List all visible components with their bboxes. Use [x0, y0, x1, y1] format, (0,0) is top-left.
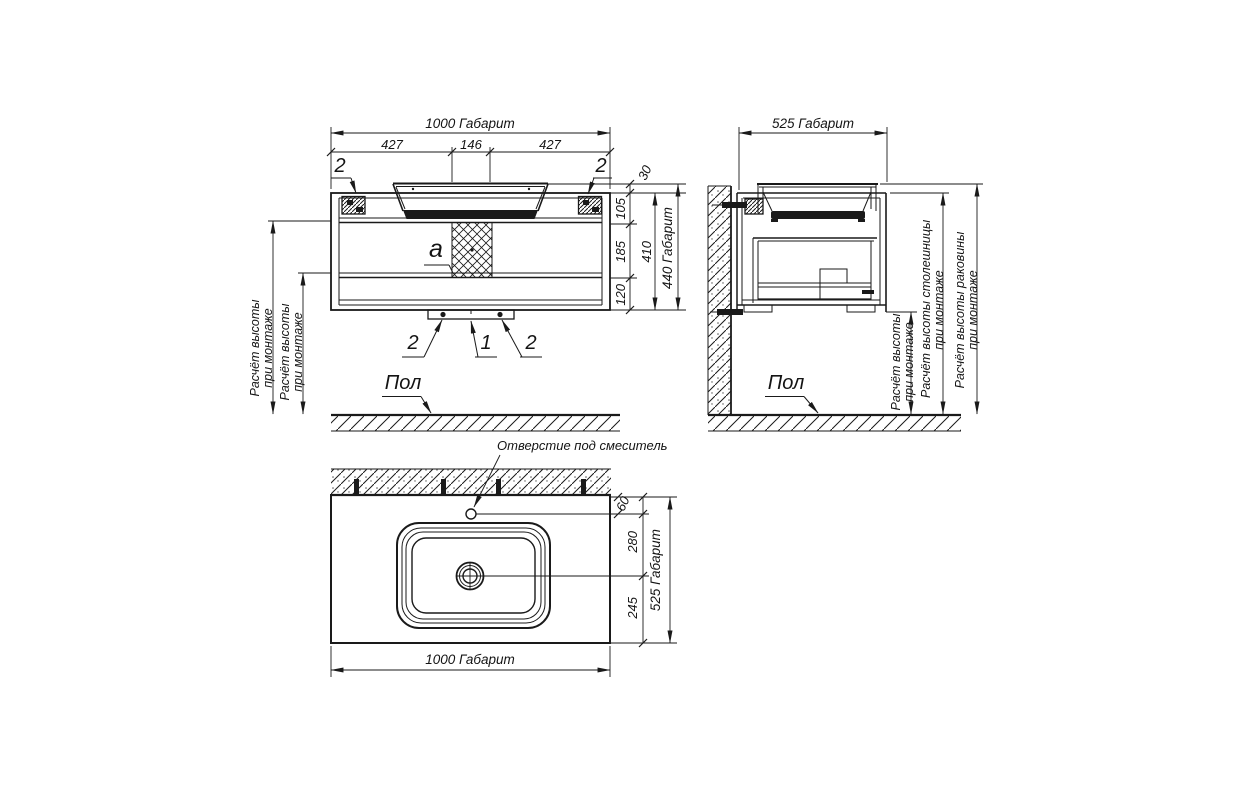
callout-2-top-right: 2 [591, 156, 611, 177]
side-view-wall [708, 186, 731, 415]
side-view-floor [708, 397, 961, 432]
front-dim-185: 185 [614, 235, 628, 269]
front-overall-width-dim: 1000 Габарит [390, 117, 550, 131]
front-overall-height-dim: 440 Габарит [661, 198, 675, 298]
side-countertop-height-label: Расчёт высоты столешницы при монтаже [920, 222, 946, 398]
top-view-wall-strip [331, 469, 611, 496]
callout-2-bottom-right: 2 [521, 333, 541, 354]
label-line: при монтаже [967, 222, 980, 398]
detail-label-a: a [425, 236, 447, 262]
callout-2-top-left: 2 [330, 156, 350, 177]
front-mount-height-label-inner: Расчёт высоты при монтаже [279, 292, 305, 412]
top-dim-245: 245 [626, 591, 640, 625]
side-sink-height-label: Расчёт высоты раковины при монтаже [954, 222, 980, 398]
front-width-dim-center: 146 [448, 138, 494, 152]
front-width-dim-left: 427 [354, 138, 430, 152]
floor-label-side: Пол [765, 373, 807, 394]
front-view-bottom-bracket [428, 310, 514, 319]
faucet-hole-label: Отверстие под смеситель [497, 439, 662, 453]
label-line: при монтаже [903, 309, 916, 415]
technical-drawing-canvas: 1000 Габарит 427 146 427 2 2 30 105 185 … [0, 0, 1251, 800]
drawing-line-work [0, 0, 1251, 800]
floor-label-front: Пол [382, 373, 424, 394]
front-mount-height-label-outer: Расчёт высоты при монтаже [249, 288, 275, 408]
callout-2-bottom-left: 2 [403, 333, 423, 354]
label-line: при монтаже [292, 292, 305, 412]
top-dim-280: 280 [626, 525, 640, 559]
label-line: при монтаже [262, 288, 275, 408]
label-line: при монтаже [933, 222, 946, 398]
front-dim-105: 105 [614, 192, 628, 226]
side-overall-depth-dim: 525 Габарит [739, 117, 887, 131]
side-view-sink [757, 184, 878, 222]
top-overall-width-dim: 1000 Габарит [400, 653, 540, 667]
side-view-dimensions [739, 127, 983, 414]
side-mount-height-label: Расчёт высоты при монтаже [890, 309, 916, 415]
front-view-sink [393, 184, 548, 220]
front-width-dim-right: 427 [512, 138, 588, 152]
front-dim-410: 410 [640, 235, 654, 269]
front-view-floor [331, 397, 620, 432]
callout-1-bottom-center: 1 [476, 333, 496, 354]
top-overall-depth-dim: 525 Габарит [649, 520, 663, 620]
top-view-countertop [331, 495, 610, 643]
front-dim-120: 120 [614, 278, 628, 312]
